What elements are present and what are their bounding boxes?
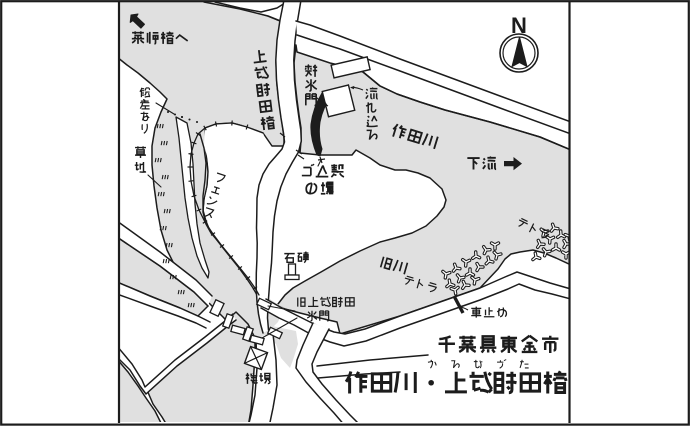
svg-text:N: N	[511, 13, 527, 38]
